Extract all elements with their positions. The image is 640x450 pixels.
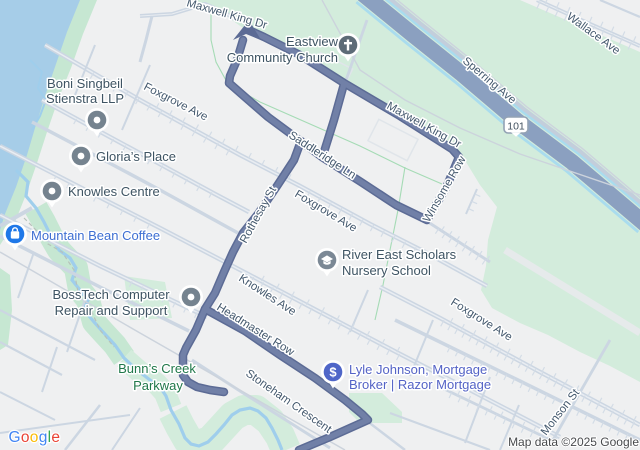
svg-text:Knowles Centre: Knowles Centre	[68, 184, 160, 199]
svg-text:Stienstra LLP: Stienstra LLP	[46, 91, 124, 106]
svg-text:Nursery School: Nursery School	[342, 263, 431, 278]
svg-text:$: $	[329, 365, 337, 380]
svg-text:Parkway: Parkway	[133, 378, 183, 393]
svg-text:Eastview: Eastview	[286, 34, 339, 49]
svg-text:Community Church: Community Church	[227, 50, 338, 65]
svg-text:River East Scholars: River East Scholars	[342, 247, 457, 262]
svg-text:101: 101	[507, 121, 525, 133]
svg-text:Boni Singbeil: Boni Singbeil	[47, 76, 123, 91]
svg-text:Map data ©2025 Google: Map data ©2025 Google	[508, 435, 639, 449]
svg-text:Bunn’s Creek: Bunn’s Creek	[118, 361, 196, 376]
svg-text:Repair and Support: Repair and Support	[55, 303, 168, 318]
svg-text:Mountain Bean Coffee: Mountain Bean Coffee	[31, 228, 160, 243]
svg-text:Google: Google	[9, 429, 61, 446]
svg-text:Gloria’s Place: Gloria’s Place	[96, 149, 176, 164]
svg-text:Broker | Razor Mortgage: Broker | Razor Mortgage	[349, 377, 491, 392]
svg-text:BossTech Computer: BossTech Computer	[52, 287, 170, 302]
svg-text:Lyle Johnson, Mortgage: Lyle Johnson, Mortgage	[349, 362, 487, 377]
